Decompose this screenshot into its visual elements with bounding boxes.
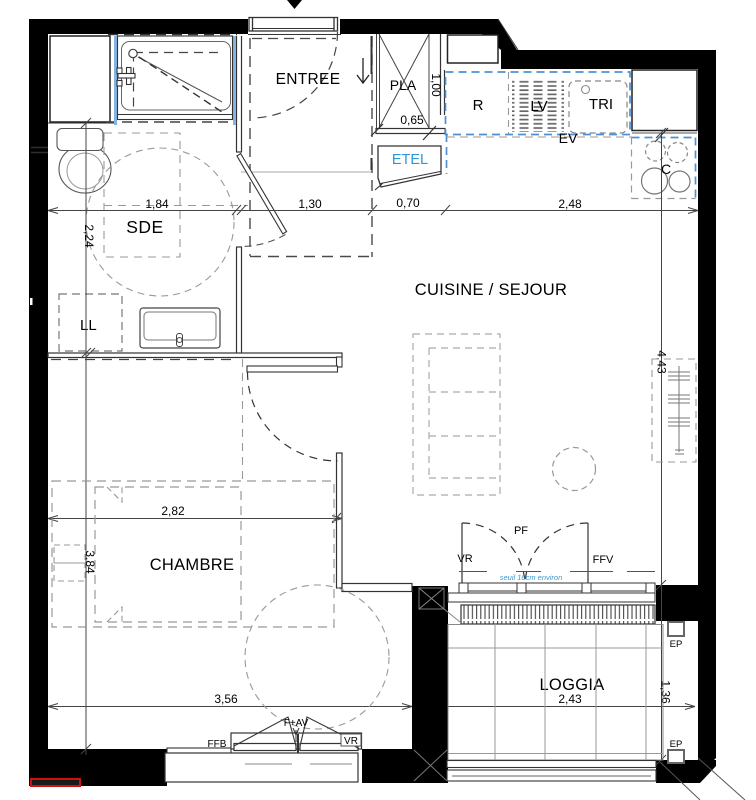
svg-text:CHAMBRE: CHAMBRE	[150, 556, 235, 574]
svg-text:1,36: 1,36	[659, 680, 673, 704]
svg-text:ETEL: ETEL	[392, 152, 428, 168]
svg-text:4,43: 4,43	[655, 350, 669, 374]
svg-text:0,65: 0,65	[400, 113, 424, 127]
svg-text:PLA: PLA	[390, 77, 417, 93]
svg-text:seuil 10cm environ: seuil 10cm environ	[500, 573, 563, 582]
svg-text:0,70: 0,70	[396, 196, 420, 210]
svg-text:2,24: 2,24	[82, 224, 96, 248]
svg-text:2,43: 2,43	[558, 692, 582, 706]
svg-text:1,84: 1,84	[145, 197, 169, 211]
svg-text:EP: EP	[670, 739, 683, 750]
svg-text:3,56: 3,56	[214, 692, 238, 706]
svg-text:CUISINE / SEJOUR: CUISINE / SEJOUR	[415, 281, 567, 299]
svg-text:VR: VR	[344, 736, 358, 747]
svg-text:ENTREE: ENTREE	[276, 71, 341, 88]
svg-text:F+AV: F+AV	[284, 718, 309, 729]
svg-text:C: C	[661, 161, 671, 177]
svg-text:R: R	[473, 97, 484, 114]
svg-text:EP: EP	[670, 639, 683, 650]
svg-text:TRI: TRI	[589, 96, 613, 113]
svg-text:1,00: 1,00	[429, 73, 443, 97]
svg-text:FFV: FFV	[593, 554, 614, 566]
svg-text:SDE: SDE	[126, 217, 163, 237]
svg-text:2,82: 2,82	[161, 504, 185, 518]
svg-text:FFB: FFB	[208, 739, 227, 750]
svg-text:LL: LL	[80, 317, 97, 334]
svg-text:VR: VR	[457, 553, 472, 565]
svg-text:2,48: 2,48	[558, 197, 582, 211]
svg-text:1,30: 1,30	[298, 197, 322, 211]
svg-text:EV: EV	[559, 130, 578, 146]
svg-text:PF: PF	[514, 525, 528, 537]
svg-text:LV: LV	[530, 98, 547, 115]
